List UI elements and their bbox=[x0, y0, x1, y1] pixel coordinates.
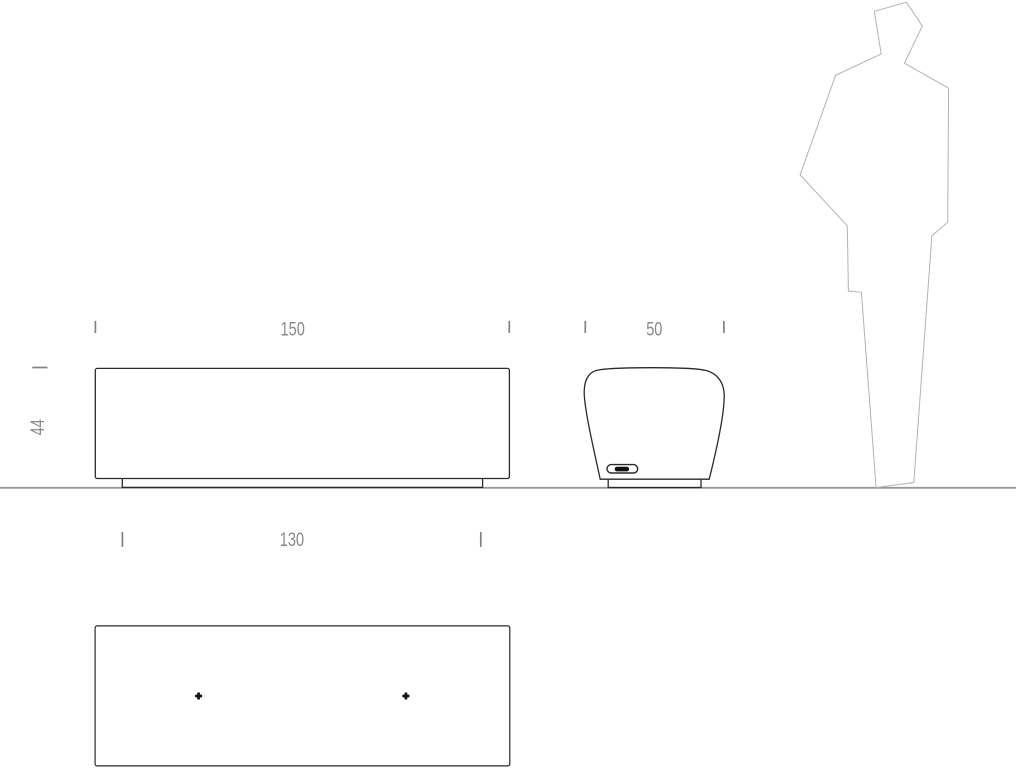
svg-text:44: 44 bbox=[27, 419, 49, 435]
svg-text:150: 150 bbox=[281, 318, 305, 340]
svg-text:130: 130 bbox=[280, 529, 304, 551]
svg-text:50: 50 bbox=[646, 318, 662, 340]
